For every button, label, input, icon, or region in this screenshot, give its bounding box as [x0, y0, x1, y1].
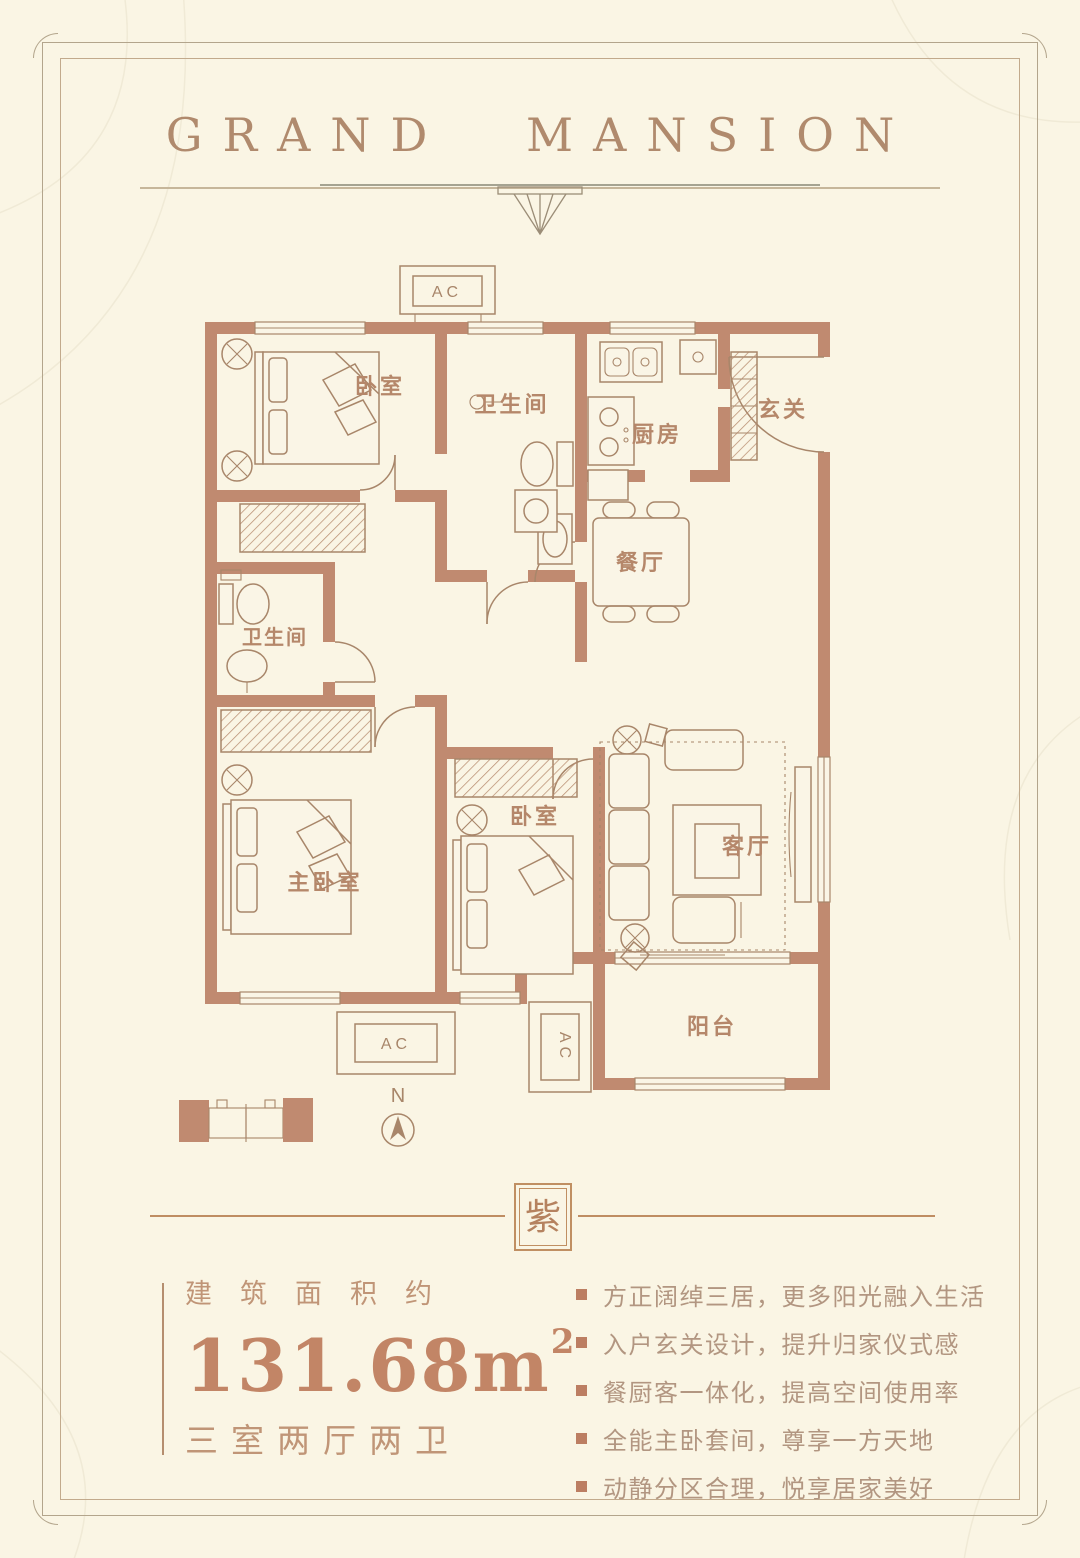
- feature-text: 入户玄关设计，提升归家仪式感: [603, 1325, 960, 1360]
- room-bedroom-1: 卧室: [222, 339, 405, 552]
- area-value: 131.68m2: [185, 1325, 515, 1404]
- room-dining: 餐厅: [593, 502, 689, 622]
- area-accent-line: [162, 1283, 164, 1455]
- area-caption: 建筑面积约: [185, 1272, 515, 1311]
- room-balcony: 阳台: [687, 1014, 737, 1039]
- building-key-plan: [173, 1088, 323, 1160]
- fan-ornament-icon: [490, 186, 590, 246]
- feature-item: 方正阔绰三居，更多阳光融入生活: [576, 1278, 976, 1311]
- room-label-bathroom-2: 卫生间: [242, 626, 308, 649]
- room-master-bedroom: 主卧室: [222, 765, 363, 934]
- room-bedroom-2: 卧室: [453, 759, 577, 974]
- brand-seal: 紫: [514, 1183, 572, 1251]
- room-label-balcony: 阳台: [687, 1014, 737, 1039]
- ac-unit-top: AC: [400, 266, 495, 322]
- room-foyer: 玄关: [731, 352, 808, 460]
- wardrobe: [221, 710, 371, 752]
- ac-label: AC: [381, 1036, 411, 1053]
- room-bathroom-1: 卫生间: [470, 392, 573, 564]
- north-label: N: [391, 1085, 405, 1107]
- floor-plan: 卧室 卫生间 厨房 玄关 餐厅: [185, 252, 885, 1102]
- room-label-dining: 餐厅: [616, 550, 666, 575]
- feature-text: 动静分区合理，悦享居家美好: [603, 1469, 935, 1504]
- room-label-kitchen: 厨房: [632, 422, 682, 447]
- seal-character: 紫: [525, 1199, 561, 1235]
- area-info: 建筑面积约 131.68m2 三室两厅两卫: [185, 1272, 515, 1462]
- feature-list: 方正阔绰三居，更多阳光融入生活 入户玄关设计，提升归家仪式感 餐厨客一体化，提高…: [576, 1278, 976, 1518]
- ac-unit-bottom-mid: AC: [529, 1002, 591, 1092]
- room-label-bedroom-2: 卧室: [510, 804, 560, 829]
- ac-unit-bottom-left: AC: [337, 1012, 455, 1074]
- layout-label: 三室两厅两卫: [185, 1414, 515, 1462]
- bullet-square-icon: [576, 1385, 587, 1396]
- area-number-text: 131.68m: [185, 1323, 551, 1408]
- feature-text: 方正阔绰三居，更多阳光融入生活: [603, 1277, 986, 1312]
- bullet-square-icon: [576, 1481, 587, 1492]
- seal-divider-right: [578, 1215, 935, 1217]
- ac-label: AC: [432, 284, 462, 301]
- room-label-foyer: 玄关: [758, 397, 808, 422]
- room-label-bedroom-1: 卧室: [355, 374, 405, 399]
- bullet-square-icon: [576, 1289, 587, 1300]
- page-title: GRAND MANSION: [0, 108, 1080, 162]
- feature-text: 餐厨客一体化，提高空间使用率: [603, 1373, 960, 1408]
- area-superscript: 2: [551, 1322, 575, 1362]
- feature-item: 餐厨客一体化，提高空间使用率: [576, 1374, 976, 1407]
- room-label-bathroom-1: 卫生间: [474, 392, 549, 417]
- room-living: 客厅: [600, 724, 811, 970]
- room-label-living: 客厅: [722, 834, 772, 859]
- feature-text: 全能主卧套间，尊享一方天地: [603, 1421, 935, 1456]
- feature-item: 全能主卧套间，尊享一方天地: [576, 1422, 976, 1455]
- room-label-master-bedroom: 主卧室: [287, 870, 362, 895]
- feature-item: 入户玄关设计，提升归家仪式感: [576, 1326, 976, 1359]
- seal-divider-left: [150, 1215, 505, 1217]
- north-compass: N: [372, 1082, 424, 1158]
- bullet-square-icon: [576, 1433, 587, 1444]
- room-bathroom-2: 卫生间: [219, 570, 308, 693]
- ac-label: AC: [556, 1032, 573, 1062]
- feature-item: 动静分区合理，悦享居家美好: [576, 1470, 976, 1503]
- bullet-square-icon: [576, 1337, 587, 1348]
